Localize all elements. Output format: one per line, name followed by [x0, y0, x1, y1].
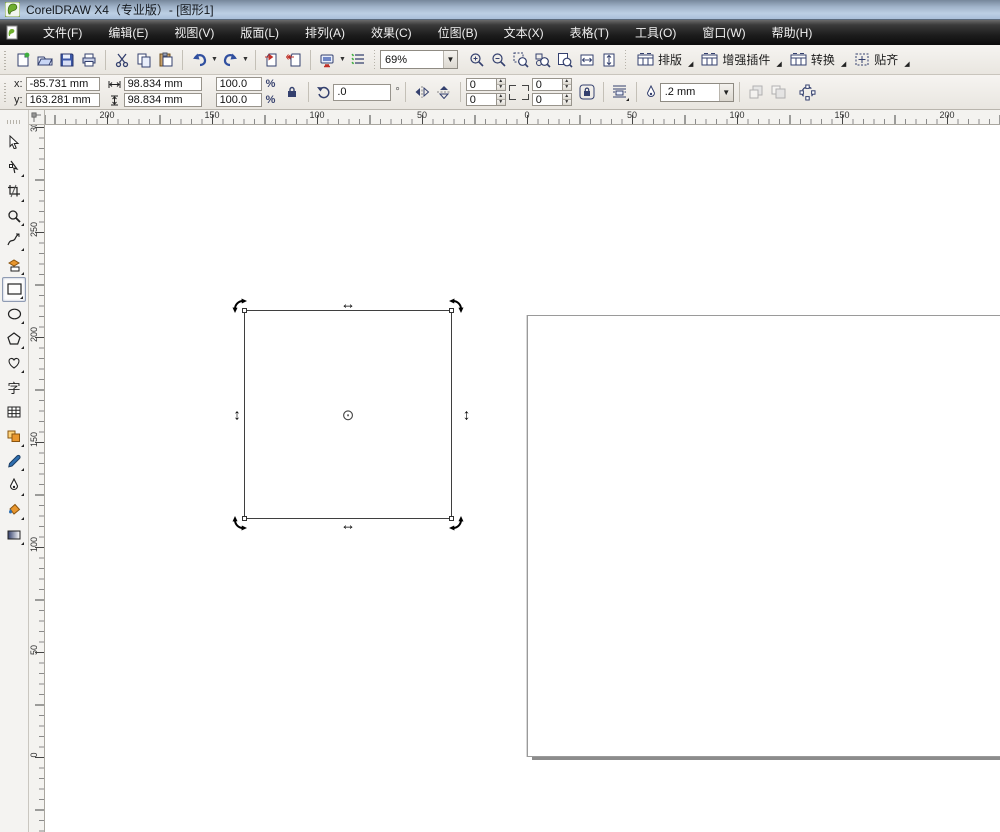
menu-effects[interactable]: 效果(C)	[358, 20, 425, 45]
toolbar-separator	[105, 50, 106, 70]
title-bar: CorelDRAW X4（专业版）- [图形1]	[0, 0, 1000, 20]
rotation-center-marker[interactable]: ⊙	[342, 406, 355, 424]
object-width-icon	[108, 80, 121, 89]
zoom-to-page-button[interactable]	[554, 49, 576, 71]
menu-bitmaps[interactable]: 位图(B)	[425, 20, 491, 45]
propbar-separator	[739, 82, 740, 102]
corner-radius-top-left-value[interactable]: 0	[466, 78, 496, 91]
corner-radius-top-left[interactable]: 0 ▲▼	[466, 78, 506, 91]
window-title: CorelDRAW X4（专业版）- [图形1]	[26, 1, 214, 18]
stretch-handle-bottom[interactable]: ↔	[341, 518, 356, 533]
propbar-separator	[405, 82, 406, 102]
print-button[interactable]	[78, 49, 100, 71]
convert-docker-label: 转换	[811, 51, 835, 68]
toolbar-separator	[310, 50, 311, 70]
y-position-field[interactable]: 163.281 mm	[26, 93, 100, 107]
options-button[interactable]	[347, 49, 369, 71]
percent-sign: %	[266, 78, 276, 90]
snap-docker-label: 贴齐	[874, 51, 898, 68]
outline-pen-tool[interactable]	[2, 473, 26, 498]
object-height-icon	[108, 95, 121, 106]
rotate-handle-bottom-left[interactable]	[232, 514, 249, 531]
corner-radius-top-right-spinner[interactable]: ▲▼	[562, 78, 572, 91]
toolbox-grip[interactable]	[7, 120, 21, 124]
rotate-handle-bottom-right[interactable]	[447, 514, 464, 531]
outline-width-dropdown-arrow[interactable]: ▼	[719, 84, 733, 101]
zoom-combo-dropdown-arrow[interactable]: ▼	[443, 51, 457, 68]
property-bar: x: -85.731 mm y: 163.281 mm 98.834 mm 98…	[0, 75, 1000, 110]
mirror-vertical-button[interactable]	[433, 81, 455, 103]
mirror-horizontal-button[interactable]	[411, 81, 433, 103]
coreldraw-app-icon	[5, 2, 20, 17]
x-position-field[interactable]: -85.731 mm	[26, 77, 100, 91]
menu-edit[interactable]: 编辑(E)	[95, 20, 161, 45]
application-launcher-button[interactable]	[316, 49, 338, 71]
crop-tool[interactable]	[2, 179, 26, 204]
left-corners-icon	[509, 85, 516, 100]
corner-radius-top-right[interactable]: 0 ▲▼	[532, 78, 572, 91]
ellipse-tool[interactable]	[2, 302, 26, 327]
outline-width-icon	[645, 85, 657, 100]
propbar-separator	[636, 82, 637, 102]
docker-flyout-arrow: ◢	[688, 60, 693, 68]
vertical-ruler[interactable]: 300250200150100500	[29, 125, 45, 832]
zoom-to-selected-button[interactable]	[510, 49, 532, 71]
page-outline	[527, 315, 1000, 757]
new-document-button[interactable]	[12, 49, 34, 71]
menu-window[interactable]: 窗口(W)	[689, 20, 758, 45]
outline-width-value: .2 mm	[661, 86, 719, 98]
basic-shapes-tool[interactable]	[2, 351, 26, 376]
rotation-angle-field[interactable]: .0	[333, 84, 391, 101]
undo-button[interactable]	[188, 49, 210, 71]
redo-dropdown-arrow[interactable]: ▼	[241, 50, 250, 70]
freehand-tool[interactable]	[2, 228, 26, 253]
y-position-label: y:	[14, 94, 23, 106]
table-tool[interactable]	[2, 400, 26, 425]
selected-rectangle[interactable]: ↔ ↔ ↕ ↕ ⊙	[244, 310, 452, 519]
toolbar-separator	[182, 50, 183, 70]
menu-table[interactable]: 表格(T)	[557, 20, 622, 45]
ruler-origin-button[interactable]	[29, 110, 45, 125]
propbar-grip[interactable]	[3, 81, 8, 103]
pick-tool[interactable]	[2, 130, 26, 155]
object-width-field[interactable]: 98.834 mm	[124, 77, 202, 91]
fill-tool[interactable]	[2, 498, 26, 523]
stretch-handle-right[interactable]: ↕	[463, 407, 471, 422]
text-tool[interactable]: 字	[2, 375, 26, 400]
menu-view[interactable]: 视图(V)	[161, 20, 227, 45]
zoom-to-all-objects-button[interactable]	[532, 49, 554, 71]
save-button[interactable]	[56, 49, 78, 71]
zoom-in-button[interactable]	[466, 49, 488, 71]
scale-horizontal-field[interactable]: 100.0	[216, 77, 262, 91]
launcher-dropdown-arrow[interactable]: ▼	[338, 50, 347, 70]
propbar-separator	[603, 82, 604, 102]
propbar-separator	[308, 82, 309, 102]
snap-docker-button[interactable]: 贴齐	[848, 48, 904, 71]
imposition-docker-button[interactable]: 排版	[631, 48, 688, 71]
cut-button[interactable]	[111, 49, 133, 71]
toolbar-grip[interactable]	[3, 49, 8, 71]
to-back-of-layer-button[interactable]	[767, 81, 789, 103]
stretch-handle-left[interactable]: ↕	[233, 407, 241, 422]
object-height-field[interactable]: 98.834 mm	[124, 93, 202, 107]
plugins-docker-label: 增强插件	[722, 51, 770, 68]
docker-flyout-arrow: ◢	[841, 60, 846, 68]
menu-help[interactable]: 帮助(H)	[759, 20, 826, 45]
x-position-label: x:	[14, 78, 23, 90]
lock-ratio-button[interactable]	[281, 81, 303, 103]
corner-radius-bottom-left[interactable]: 0 ▲▼	[466, 93, 506, 106]
interactive-blend-tool[interactable]	[2, 424, 26, 449]
degree-sign: °	[395, 86, 399, 98]
corner-radius-bottom-left-value[interactable]: 0	[466, 93, 496, 106]
toolbar-separator	[374, 50, 375, 70]
text-tool-glyph: 字	[7, 378, 20, 397]
right-corners-icon	[522, 85, 529, 100]
paste-button[interactable]	[155, 49, 177, 71]
corner-radius-top-right-value[interactable]: 0	[532, 78, 562, 91]
open-button[interactable]	[34, 49, 56, 71]
percent-sign: %	[266, 94, 276, 106]
corner-radius-bottom-right-value[interactable]: 0	[532, 93, 562, 106]
import-button[interactable]	[261, 49, 283, 71]
wrap-paragraph-text-button[interactable]	[609, 81, 631, 103]
polygon-tool[interactable]	[2, 326, 26, 351]
rotate-handle-top-left[interactable]	[232, 298, 249, 315]
zoom-tool[interactable]	[2, 204, 26, 229]
toolbar-separator	[625, 50, 626, 70]
zoom-level-value: 69%	[381, 54, 443, 66]
corner-radius-bottom-right[interactable]: 0 ▲▼	[532, 93, 572, 106]
eyedropper-tool[interactable]	[2, 449, 26, 474]
menu-arrange[interactable]: 排列(A)	[292, 20, 358, 45]
corner-radius-bottom-right-spinner[interactable]: ▲▼	[562, 93, 572, 106]
stretch-handle-top[interactable]: ↔	[341, 297, 356, 312]
rectangle-tool[interactable]	[2, 277, 26, 302]
docker-flyout-arrow: ◢	[904, 60, 909, 68]
rotate-handle-top-right[interactable]	[447, 298, 464, 315]
to-front-of-layer-button[interactable]	[745, 81, 767, 103]
corner-radius-bottom-left-spinner[interactable]: ▲▼	[496, 93, 506, 106]
menu-text[interactable]: 文本(X)	[491, 20, 557, 45]
zoom-level-combo[interactable]: 69% ▼	[380, 50, 458, 69]
plugins-docker-button[interactable]: 增强插件	[695, 48, 776, 71]
zoom-to-page-width-button[interactable]	[576, 49, 598, 71]
convert-to-curves-button[interactable]	[797, 81, 819, 103]
redo-button[interactable]	[219, 49, 241, 71]
toolbox: 字	[0, 110, 29, 832]
corner-radius-top-left-spinner[interactable]: ▲▼	[496, 78, 506, 91]
docker-flyout-arrow: ◢	[776, 60, 781, 68]
drawing-canvas[interactable]: ↔ ↔ ↕ ↕ ⊙	[45, 125, 1000, 832]
shape-tool[interactable]	[2, 155, 26, 180]
standard-toolbar: ▼ ▼ ▼ 69% ▼ 排版	[0, 45, 1000, 75]
scale-vertical-field[interactable]: 100.0	[216, 93, 262, 107]
rotation-icon	[316, 85, 331, 100]
zoom-out-button[interactable]	[488, 49, 510, 71]
smart-fill-tool[interactable]	[2, 253, 26, 278]
interactive-fill-tool[interactable]	[2, 522, 26, 547]
toolbar-separator	[255, 50, 256, 70]
export-button[interactable]	[283, 49, 305, 71]
propbar-separator	[460, 82, 461, 102]
menu-layout[interactable]: 版面(L)	[227, 20, 292, 45]
menu-tools[interactable]: 工具(O)	[622, 20, 689, 45]
outline-width-combo[interactable]: .2 mm ▼	[660, 83, 734, 102]
undo-dropdown-arrow[interactable]: ▼	[210, 50, 219, 70]
lock-corners-together-button[interactable]	[576, 81, 598, 103]
menu-file[interactable]: 文件(F)	[30, 20, 95, 45]
copy-button[interactable]	[133, 49, 155, 71]
horizontal-ruler[interactable]: 20015010050050100150200	[45, 110, 1000, 125]
document-system-menu-icon[interactable]	[4, 25, 20, 41]
convert-docker-button[interactable]: 转换	[784, 48, 841, 71]
imposition-docker-label: 排版	[658, 51, 682, 68]
menu-bar: 文件(F) 编辑(E) 视图(V) 版面(L) 排列(A) 效果(C) 位图(B…	[0, 20, 1000, 45]
zoom-to-page-height-button[interactable]	[598, 49, 620, 71]
